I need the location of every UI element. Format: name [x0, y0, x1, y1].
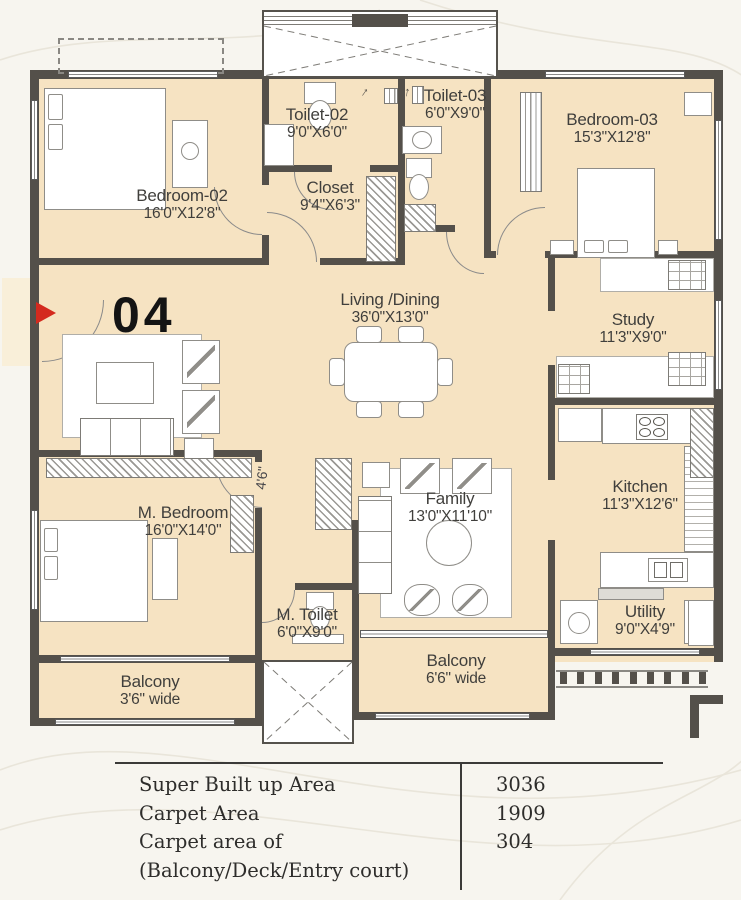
coffee-table: [96, 362, 154, 404]
table-labels: Super Built up Area Carpet Area Carpet a…: [115, 771, 460, 885]
sink-bowl: [654, 562, 667, 578]
unit-number: 04: [112, 286, 176, 344]
window: [31, 510, 38, 610]
wall: [39, 258, 267, 265]
stove-icon: [636, 414, 668, 440]
room-label-bedroom-02: Bedroom-02 16'0"X12'8": [87, 186, 277, 223]
sink-icon: [412, 131, 432, 149]
fridge: [558, 408, 602, 442]
window: [60, 656, 230, 662]
room-label-kitchen: Kitchen 11'3"X12'6": [560, 477, 720, 514]
sink-bowl: [670, 562, 683, 578]
wall: [690, 695, 723, 704]
window: [375, 713, 530, 719]
bedside-table: [550, 240, 574, 255]
wall: [255, 450, 262, 462]
room-name: Kitchen: [612, 477, 667, 496]
wall: [370, 165, 398, 172]
shaft-hatch: [690, 408, 714, 478]
room-name: M. Toilet: [276, 605, 337, 624]
duct-box: [262, 10, 498, 78]
room-dims: 6'6" wide: [426, 670, 486, 688]
window: [55, 719, 235, 725]
window: [68, 71, 218, 78]
room-label-family: Family 13'0"X11'10": [360, 489, 540, 526]
area-table: Super Built up Area Carpet Area Carpet a…: [115, 762, 663, 890]
wardrobe: [46, 458, 252, 478]
room-dims: 11'3"X12'6": [602, 496, 678, 514]
table-label: Carpet area of: [115, 828, 460, 857]
floorplan-page: ↑ ↑: [0, 0, 741, 900]
room-name: Living /Dining: [340, 290, 439, 309]
window: [545, 71, 685, 78]
dining-chair: [437, 358, 453, 386]
wall: [484, 251, 496, 258]
dining-chair: [356, 401, 382, 418]
room-name: Toilet-02: [286, 105, 348, 124]
window: [590, 649, 700, 655]
room-label-living-dining: Living /Dining 36'0"X13'0": [300, 290, 480, 327]
table-label: Super Built up Area: [115, 771, 460, 800]
bedside-table: [658, 240, 678, 255]
table-values: 3036 1909 304: [460, 771, 663, 885]
room-label-toilet-03: Toilet-03 6'0"X9'0": [395, 86, 515, 123]
table-divider: [460, 764, 462, 890]
room-name: Bedroom-03: [566, 110, 658, 129]
pillow: [48, 94, 63, 120]
wall: [548, 630, 555, 720]
room-dims: 6'0"X9'0": [425, 105, 485, 123]
room-label-toilet-02: Toilet-02 9'0"X6'0": [257, 105, 377, 142]
room-name: Balcony: [120, 672, 179, 691]
room-dims: 11'3"X9'0": [599, 329, 666, 347]
room-dims: 16'0"X14'0": [145, 522, 222, 540]
table-value: 3036: [460, 771, 663, 800]
desk: [558, 364, 590, 394]
room-label-bedroom-03: Bedroom-03 15'3"X12'8": [517, 110, 707, 147]
wall: [548, 365, 555, 480]
wall: [352, 14, 408, 27]
pouf-chair: [404, 584, 440, 616]
room-label-study: Study 11'3"X9'0": [558, 310, 708, 347]
pillow: [44, 556, 58, 580]
room-label-balcony-left: Balcony 3'6" wide: [75, 672, 225, 709]
armchair: [182, 390, 220, 434]
pouf-chair: [452, 584, 488, 616]
entry-arrow-icon: [36, 302, 56, 324]
window: [715, 120, 722, 240]
wc-icon: [409, 174, 429, 200]
dining-chair: [398, 326, 424, 343]
lamp-icon: [181, 142, 199, 160]
dining-chair: [329, 358, 345, 386]
room-name: Bedroom-02: [136, 186, 228, 205]
wardrobe: [315, 458, 352, 530]
pillow: [584, 240, 604, 253]
balcony-railing: [560, 672, 706, 684]
window: [715, 300, 722, 390]
table-value: 1909: [460, 800, 663, 829]
wall: [255, 655, 262, 726]
room-dims: 13'0"X11'10": [408, 508, 492, 526]
table-label: (Balcony/Deck/Entry court): [115, 857, 460, 886]
room-name: Closet: [307, 178, 354, 197]
room-dims: 3'6" wide: [120, 691, 180, 709]
shower-area: [404, 204, 436, 232]
pillow: [44, 528, 58, 552]
sliding-door: [360, 630, 548, 638]
desk: [668, 260, 706, 290]
wall: [555, 398, 714, 405]
armchair: [182, 340, 220, 384]
pillow: [608, 240, 628, 253]
round-table: [426, 520, 472, 566]
table-label: Carpet Area: [115, 800, 460, 829]
room-dims: 15'3"X12'8": [574, 129, 651, 147]
room-name: Balcony: [426, 651, 485, 670]
pillow: [48, 124, 63, 150]
wall: [548, 251, 555, 311]
sofa: [80, 418, 174, 456]
room-name: Utility: [625, 602, 665, 621]
window: [31, 100, 38, 180]
room-name: Toilet-03: [424, 86, 486, 105]
wall: [352, 630, 359, 720]
room-name: Family: [426, 489, 475, 508]
table-value: 304: [460, 828, 663, 857]
projection-outline: [58, 38, 224, 74]
dresser: [152, 538, 178, 600]
passage-width-label: 4'6": [252, 466, 271, 491]
room-label-m-bedroom: M. Bedroom 16'0"X14'0": [88, 503, 278, 540]
room-label-closet: Closet 9'4"X6'3": [270, 178, 390, 215]
side-table: [362, 462, 390, 488]
platform: [598, 588, 664, 600]
dining-table: [344, 342, 438, 402]
room-label-utility: Utility 9'0"X4'9": [575, 602, 715, 639]
dining-chair: [398, 401, 424, 418]
room-dims: 9'0"X6'0": [287, 124, 347, 142]
wall: [295, 583, 352, 590]
room-dims: 16'0"X12'8": [144, 205, 221, 223]
lobby-strip: [2, 278, 30, 366]
room-dims: 9'4"X6'3": [300, 197, 360, 215]
room-name: M. Bedroom: [138, 503, 229, 522]
railing-rail: [556, 686, 708, 688]
dining-chair: [356, 326, 382, 343]
room-dims: 6'0"X9'0": [277, 624, 337, 642]
wall: [262, 165, 332, 172]
room-dims: 9'0"X4'9": [615, 621, 675, 639]
room-name: Study: [612, 310, 654, 329]
room-dims: 36'0"X13'0": [352, 309, 429, 327]
desk: [668, 352, 706, 386]
room-label-m-toilet: M. Toilet 6'0"X9'0": [252, 605, 362, 642]
shaft-box: [262, 660, 354, 744]
room-label-balcony-center: Balcony 6'6" wide: [376, 651, 536, 688]
wall: [690, 704, 699, 738]
